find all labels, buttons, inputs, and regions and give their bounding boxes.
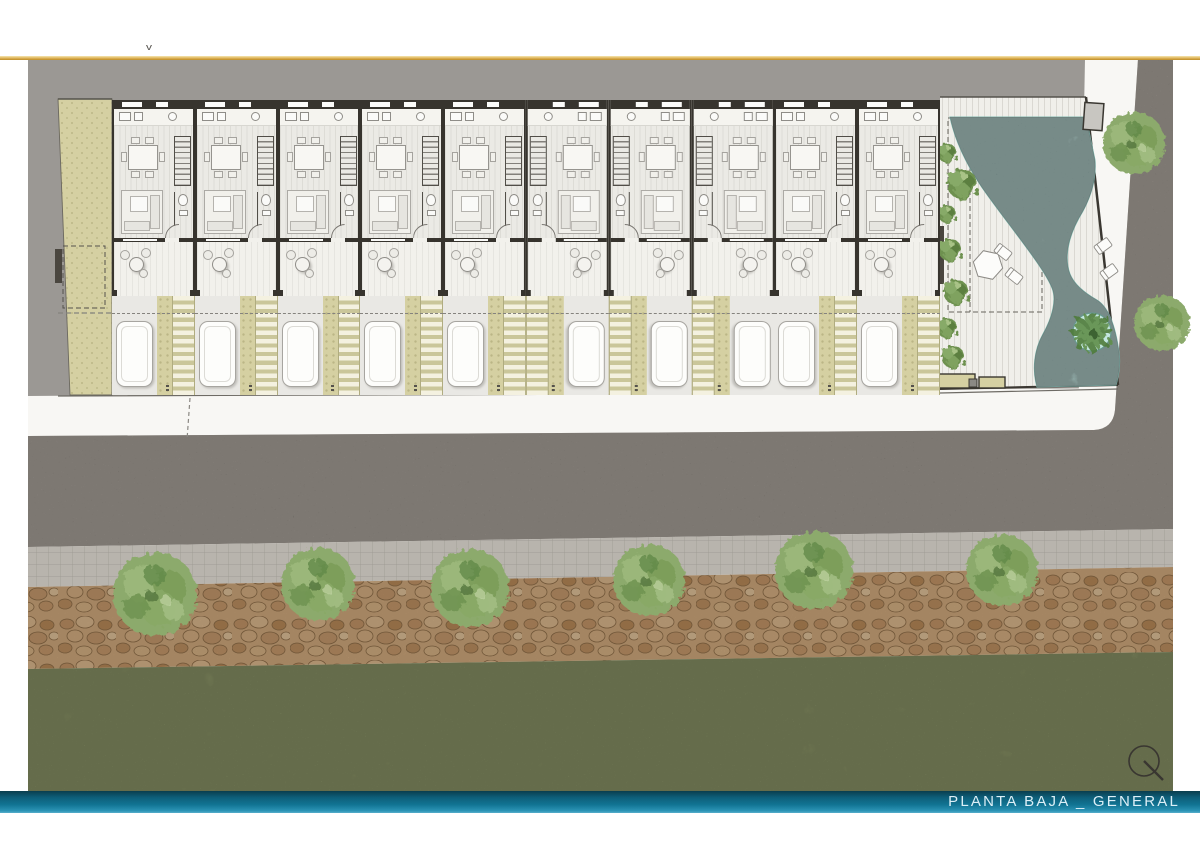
tree-icon bbox=[1134, 295, 1190, 351]
shrub-icon bbox=[938, 205, 956, 223]
site-plan bbox=[0, 0, 1200, 849]
gold-rule bbox=[0, 56, 1200, 60]
deck-planter bbox=[979, 377, 1005, 388]
shrub-icon bbox=[937, 318, 957, 338]
tree-icon bbox=[775, 531, 853, 609]
shrub-icon bbox=[942, 346, 965, 369]
tree-icon bbox=[1103, 112, 1165, 174]
palm-shrub-icon bbox=[900, 350, 933, 383]
plan-title: PLANTA BAJA _ GENERAL bbox=[948, 791, 1200, 813]
title-bar: PLANTA BAJA _ GENERAL bbox=[0, 791, 1200, 813]
tree-icon bbox=[113, 552, 197, 636]
side-gate bbox=[55, 249, 62, 283]
drawing-sheet: v PLANTA BAJA _ GENERAL bbox=[0, 0, 1200, 849]
lawn-texture bbox=[28, 652, 1173, 791]
shrub-icon bbox=[947, 169, 977, 199]
tree-icon bbox=[966, 534, 1038, 606]
stray-tick-mark: v bbox=[146, 41, 152, 52]
shrub-icon bbox=[943, 279, 968, 304]
shrub-icon bbox=[937, 143, 956, 162]
palm-tree-icon bbox=[1070, 310, 1115, 355]
tree-icon bbox=[431, 549, 509, 627]
tree-icon bbox=[281, 547, 355, 621]
pool-equipment-box bbox=[1083, 102, 1104, 130]
tree-icon bbox=[613, 544, 685, 616]
shrub-icon bbox=[939, 239, 962, 262]
deck-utility-box bbox=[969, 379, 977, 387]
